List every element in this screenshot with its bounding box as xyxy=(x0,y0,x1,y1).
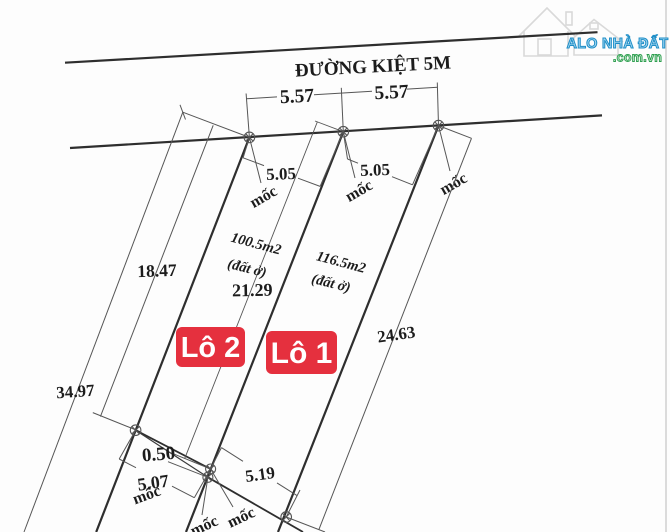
svg-text:(đất ở): (đất ở) xyxy=(310,271,352,296)
svg-text:Lô 2: Lô 2 xyxy=(181,332,241,364)
svg-text:ĐƯỜNG KIỆT 5M: ĐƯỜNG KIỆT 5M xyxy=(294,51,451,81)
svg-text:Lô 1: Lô 1 xyxy=(271,337,333,370)
svg-text:5.57: 5.57 xyxy=(374,82,409,105)
svg-text:18.47: 18.47 xyxy=(137,260,177,281)
svg-text:5.19: 5.19 xyxy=(244,463,276,486)
svg-text:(đất ở): (đất ở) xyxy=(226,256,268,281)
svg-text:21.29: 21.29 xyxy=(232,280,273,301)
svg-text:5.05: 5.05 xyxy=(266,164,296,184)
svg-text:100.5m2: 100.5m2 xyxy=(229,230,283,259)
svg-text:mốc: mốc xyxy=(343,177,376,206)
svg-text:mốc: mốc xyxy=(225,504,258,531)
svg-text:5.05: 5.05 xyxy=(360,160,390,180)
svg-text:mốc: mốc xyxy=(247,183,280,212)
svg-text:mốc: mốc xyxy=(131,482,164,508)
svg-text:ALO NHÀ ĐẤT: ALO NHÀ ĐẤT xyxy=(567,35,669,52)
svg-text:0.50: 0.50 xyxy=(141,443,176,467)
svg-text:34.97: 34.97 xyxy=(56,381,96,403)
svg-text:5.57: 5.57 xyxy=(279,86,314,109)
svg-text:.com.vn: .com.vn xyxy=(613,51,662,65)
svg-text:24.63: 24.63 xyxy=(376,322,417,346)
